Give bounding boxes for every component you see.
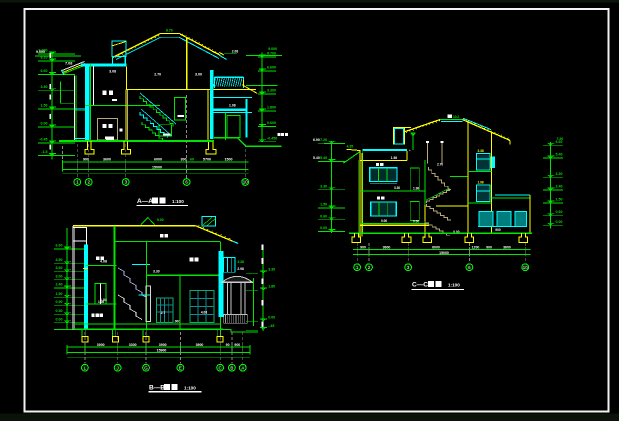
svg-text:90: 90 — [226, 343, 230, 347]
svg-text:8.70: 8.70 — [166, 29, 173, 33]
svg-text:3.30: 3.30 — [556, 172, 563, 176]
svg-text:G: G — [144, 365, 148, 370]
svg-text:2.70: 2.70 — [154, 73, 161, 77]
svg-text:0.00: 0.00 — [381, 219, 387, 223]
svg-text:6000: 6000 — [154, 158, 162, 162]
svg-text:2.40: 2.40 — [56, 282, 63, 286]
svg-text:7.20: 7.20 — [320, 138, 327, 142]
svg-text:900: 900 — [495, 228, 501, 232]
svg-text:6000: 6000 — [432, 245, 440, 249]
svg-text:3.38: 3.38 — [237, 260, 244, 264]
svg-text:6.60: 6.60 — [41, 69, 48, 73]
svg-text:3.00: 3.00 — [195, 73, 202, 77]
svg-text:0.00: 0.00 — [268, 316, 275, 320]
svg-text:-0.45: -0.45 — [39, 138, 47, 142]
svg-text:7.08: 7.08 — [65, 62, 72, 66]
svg-text:.000: .000 — [174, 319, 180, 323]
svg-text:0.00: 0.00 — [320, 226, 327, 230]
svg-text:300: 300 — [181, 158, 187, 162]
svg-text:10: 10 — [523, 265, 528, 270]
svg-text:9.000: 9.000 — [36, 50, 45, 54]
svg-text:3900: 3900 — [196, 343, 204, 347]
svg-text:1.08: 1.08 — [98, 300, 104, 304]
svg-text:3.30: 3.30 — [320, 184, 327, 188]
svg-text:B—B: B—B — [149, 385, 165, 392]
svg-text:1.08: 1.08 — [229, 104, 236, 108]
svg-text:0.30: 0.30 — [56, 309, 63, 313]
svg-text:5.40: 5.40 — [556, 153, 563, 157]
svg-text:900: 900 — [234, 343, 240, 347]
svg-text:0.00: 0.00 — [56, 317, 63, 321]
svg-text:-0.450: -0.450 — [267, 136, 277, 140]
svg-text:1.98: 1.98 — [478, 181, 484, 185]
svg-text:1.50: 1.50 — [41, 104, 48, 108]
svg-text:9.000: 9.000 — [268, 47, 277, 51]
svg-text:3.60: 3.60 — [56, 266, 63, 270]
svg-text:2.7: 2.7 — [161, 311, 166, 315]
svg-text:0.60: 0.60 — [320, 214, 327, 218]
svg-text:1:100: 1:100 — [448, 283, 460, 288]
svg-text:+: + — [409, 148, 411, 152]
svg-text:60: 60 — [190, 158, 194, 162]
svg-text:2.40: 2.40 — [556, 185, 563, 189]
svg-text:6.00: 6.00 — [56, 244, 63, 248]
svg-text:1.50: 1.50 — [556, 197, 563, 201]
svg-text:1:100: 1:100 — [184, 386, 196, 391]
svg-text:1.50: 1.50 — [56, 292, 63, 296]
svg-text:1.80: 1.80 — [268, 285, 275, 289]
svg-text:C—C: C—C — [412, 282, 428, 289]
svg-text:1:100: 1:100 — [172, 199, 184, 204]
svg-text:8.700: 8.700 — [267, 52, 276, 56]
svg-text:4.50: 4.50 — [56, 258, 63, 262]
svg-text:3.08: 3.08 — [109, 69, 116, 73]
svg-text:15000: 15000 — [152, 165, 162, 169]
svg-text:A: A — [241, 365, 244, 370]
svg-text:5700: 5700 — [203, 158, 211, 162]
svg-text:3.300: 3.300 — [267, 89, 276, 93]
svg-text:2.98: 2.98 — [237, 267, 244, 271]
svg-text:1500: 1500 — [225, 158, 233, 162]
svg-text:10: 10 — [243, 180, 248, 185]
svg-text:3.30: 3.30 — [268, 268, 275, 272]
svg-text:J: J — [116, 365, 118, 370]
svg-text:15000: 15000 — [439, 251, 449, 255]
svg-text:-1.5: -1.5 — [41, 150, 47, 154]
svg-text:900: 900 — [486, 245, 492, 249]
svg-text:1200: 1200 — [472, 245, 480, 249]
svg-text:6.600: 6.600 — [267, 65, 276, 69]
svg-text:3900: 3900 — [159, 343, 167, 347]
svg-text:6.90: 6.90 — [313, 138, 320, 142]
svg-text:10.2: 10.2 — [453, 115, 459, 119]
svg-text:5.40: 5.40 — [313, 156, 320, 160]
svg-text:3600: 3600 — [503, 245, 511, 249]
svg-text:3300: 3300 — [129, 343, 137, 347]
svg-text:9.00: 9.00 — [157, 218, 164, 222]
svg-text:900: 900 — [360, 245, 366, 249]
svg-text:1.98: 1.98 — [391, 156, 397, 160]
svg-text:3.38: 3.38 — [478, 149, 484, 153]
svg-text:3.30: 3.30 — [394, 186, 400, 190]
svg-text:3.30: 3.30 — [41, 85, 48, 89]
svg-text:2.70: 2.70 — [437, 163, 443, 167]
svg-text:5.40: 5.40 — [320, 156, 327, 160]
svg-text:3900: 3900 — [97, 343, 105, 347]
svg-text:0.600: 0.600 — [267, 121, 276, 125]
svg-text:1.98: 1.98 — [413, 187, 419, 191]
svg-text:1.50: 1.50 — [320, 203, 327, 207]
svg-text:7.20: 7.20 — [557, 137, 564, 141]
svg-text:0.00: 0.00 — [41, 122, 48, 126]
svg-text:A—A: A—A — [137, 198, 153, 205]
svg-text:C: C — [219, 365, 222, 370]
svg-text:3.30: 3.30 — [153, 269, 160, 273]
svg-text:0.00: 0.00 — [556, 220, 563, 224]
svg-text:E: E — [179, 365, 182, 370]
svg-text:15900: 15900 — [157, 349, 167, 353]
svg-text:3600: 3600 — [383, 245, 391, 249]
svg-text:-.45: -.45 — [268, 324, 274, 328]
svg-text:B: B — [230, 365, 233, 370]
svg-text:900: 900 — [83, 158, 89, 162]
svg-text:3.00: 3.00 — [56, 274, 63, 278]
svg-text:0.60: 0.60 — [556, 210, 563, 214]
svg-text:1.800: 1.800 — [267, 106, 276, 110]
svg-text:4.35: 4.35 — [347, 145, 354, 149]
svg-text:0.90: 0.90 — [56, 300, 63, 304]
svg-text:3600: 3600 — [103, 158, 111, 162]
svg-text:4.08: 4.08 — [201, 311, 207, 315]
svg-text:4.08: 4.08 — [100, 260, 107, 264]
